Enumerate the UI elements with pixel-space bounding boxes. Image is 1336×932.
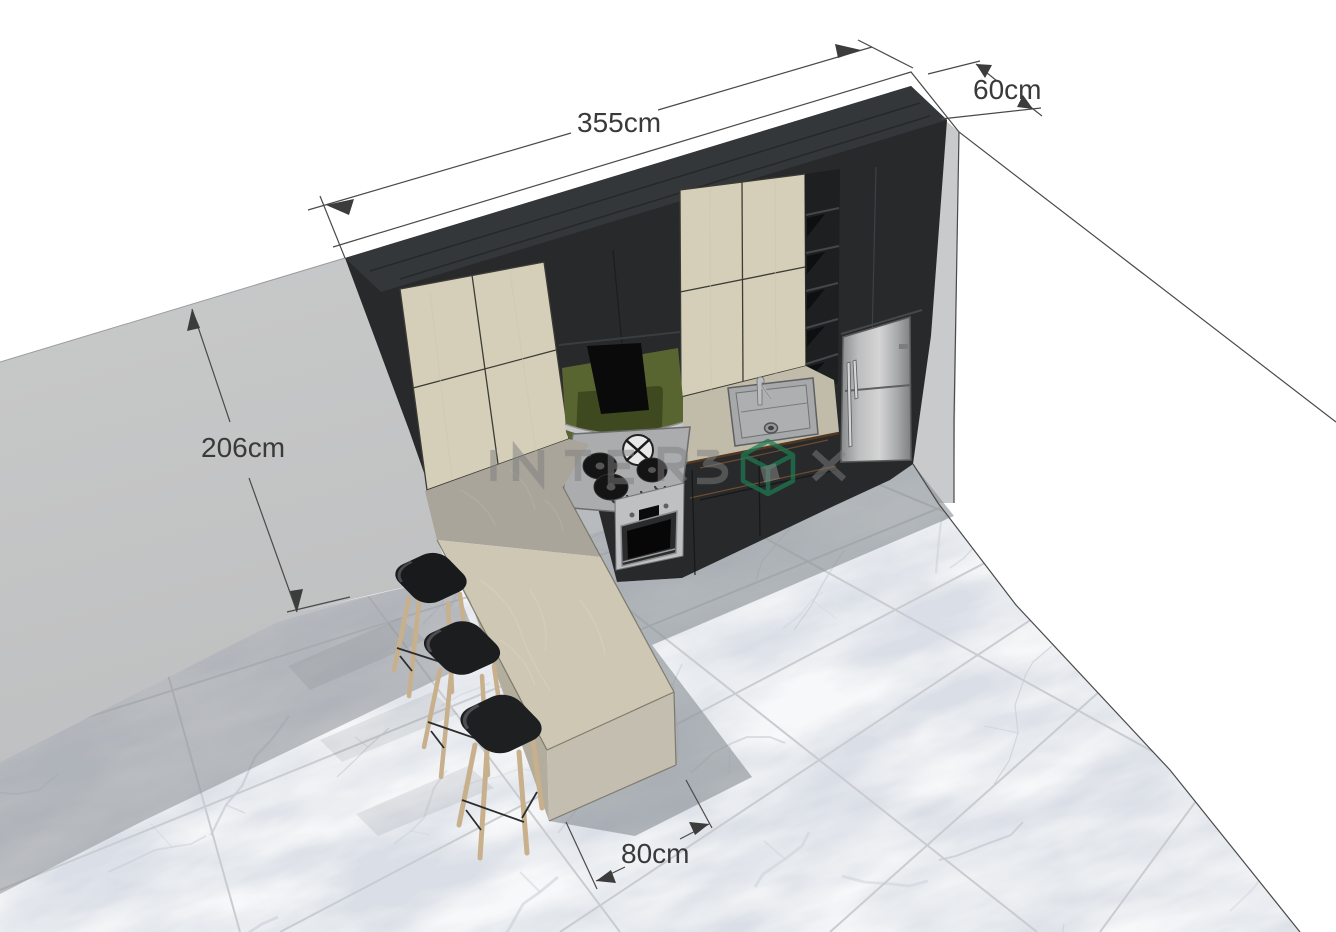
svg-text:355cm: 355cm: [577, 107, 661, 138]
svg-text:206cm: 206cm: [201, 432, 285, 463]
svg-text:80cm: 80cm: [621, 838, 689, 869]
svg-text:60cm: 60cm: [973, 74, 1041, 105]
